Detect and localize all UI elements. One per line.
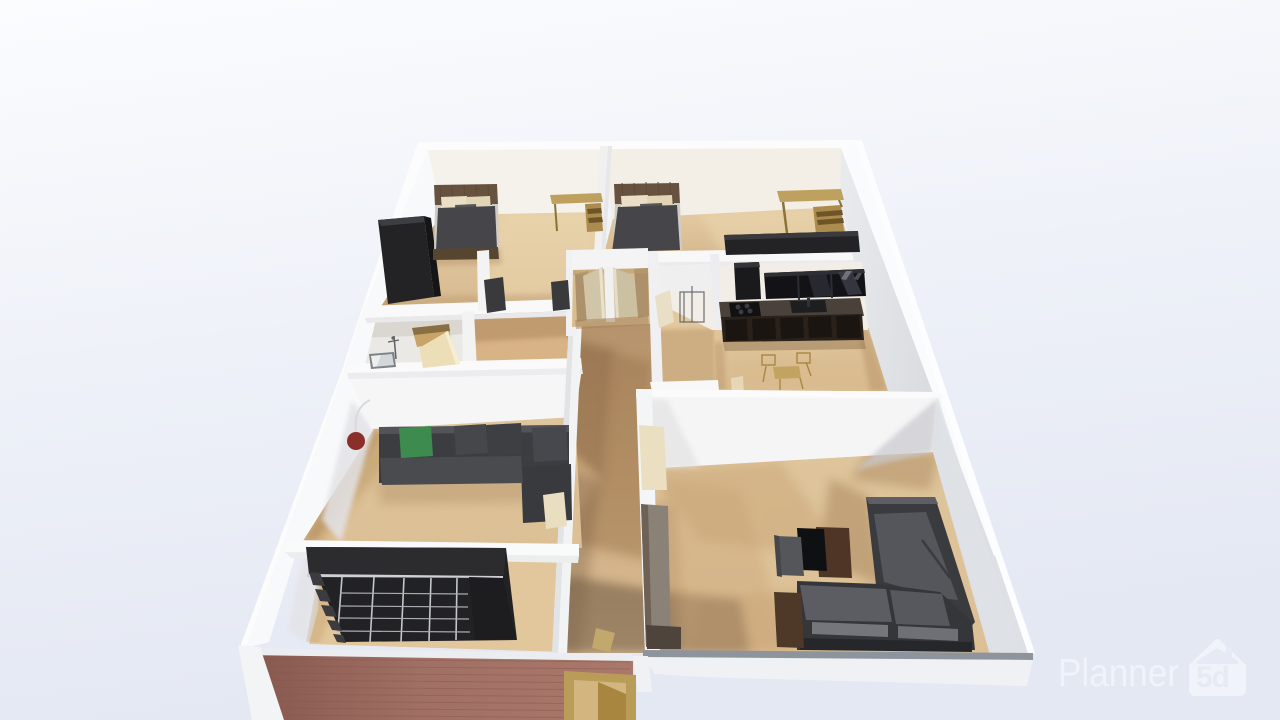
svg-text:5d: 5d (1196, 661, 1229, 694)
svg-text:Planner: Planner (1058, 652, 1179, 695)
